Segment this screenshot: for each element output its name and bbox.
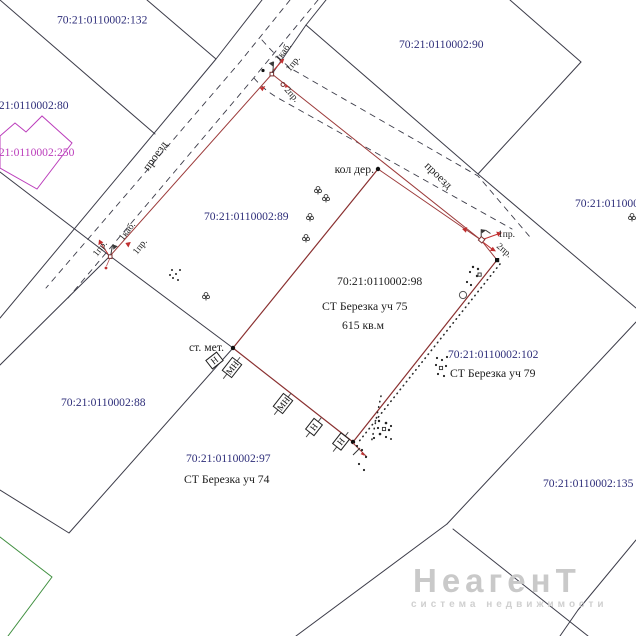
svg-text:70:21:0110002:89: 70:21:0110002:89 xyxy=(204,210,289,223)
svg-text:70:21:0110002:97: 70:21:0110002:97 xyxy=(186,452,271,465)
svg-text:1пр.: 1пр. xyxy=(498,230,515,240)
svg-text:70:21:0110002:102: 70:21:0110002:102 xyxy=(448,348,539,361)
svg-text:70:21:0110002:98: 70:21:0110002:98 xyxy=(337,275,422,288)
svg-text:СТ Березка уч 79: СТ Березка уч 79 xyxy=(450,367,536,380)
svg-text:70:21:0110002:80: 70:21:0110002:80 xyxy=(0,99,69,112)
svg-text:кол дер.: кол дер. xyxy=(335,163,375,176)
svg-text:70:21:0110002:132: 70:21:0110002:132 xyxy=(57,14,148,27)
svg-text:СТ Березка уч 75: СТ Березка уч 75 xyxy=(322,300,408,313)
svg-text:СТ Березка уч 74: СТ Березка уч 74 xyxy=(184,473,270,486)
svg-text:70:21:0110002:90: 70:21:0110002:90 xyxy=(399,38,484,51)
svg-text:615 кв.м: 615 кв.м xyxy=(342,319,385,332)
svg-text:70:21:0110002:100: 70:21:0110002:100 xyxy=(575,197,636,210)
svg-text:система недвижимости: система недвижимости xyxy=(411,599,608,610)
svg-text:70:21:0110002:88: 70:21:0110002:88 xyxy=(61,396,146,409)
svg-text:70:21:0110002:250: 70:21:0110002:250 xyxy=(0,146,75,159)
svg-text:70:21:0110002:135: 70:21:0110002:135 xyxy=(543,477,634,490)
svg-text:ст. мет.: ст. мет. xyxy=(189,341,224,354)
svg-text:НеагенТ: НеагенТ xyxy=(413,562,581,599)
